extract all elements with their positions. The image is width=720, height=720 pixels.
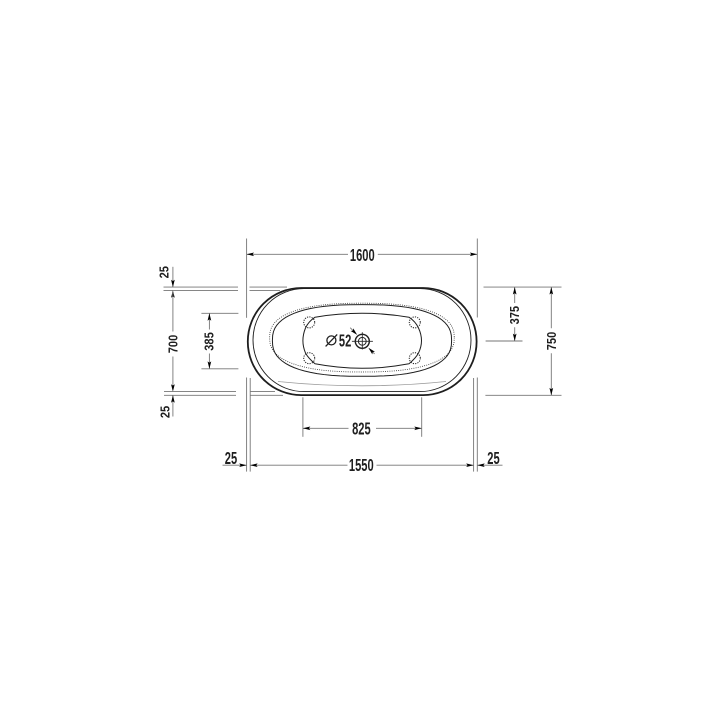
svg-text:25: 25	[158, 405, 173, 418]
svg-text:25: 25	[157, 266, 172, 279]
svg-text:825: 825	[352, 420, 371, 439]
svg-text:25: 25	[225, 450, 237, 469]
svg-text:375: 375	[507, 306, 522, 325]
svg-text:1600: 1600	[350, 247, 375, 266]
svg-text:700: 700	[166, 334, 181, 353]
svg-text:1550: 1550	[349, 457, 374, 476]
svg-text:750: 750	[545, 331, 560, 350]
svg-text:25: 25	[487, 450, 499, 469]
svg-text:52: 52	[339, 332, 351, 351]
svg-text:385: 385	[202, 332, 217, 351]
